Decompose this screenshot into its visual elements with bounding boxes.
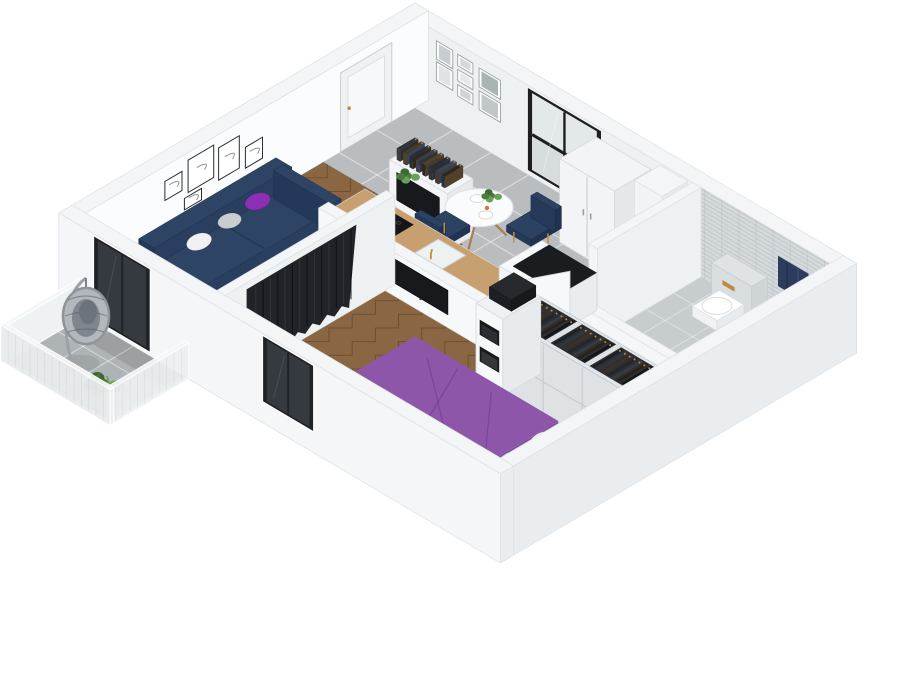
apartment-3d-floorplan — [0, 0, 900, 700]
apartment-render-stage — [0, 0, 900, 700]
